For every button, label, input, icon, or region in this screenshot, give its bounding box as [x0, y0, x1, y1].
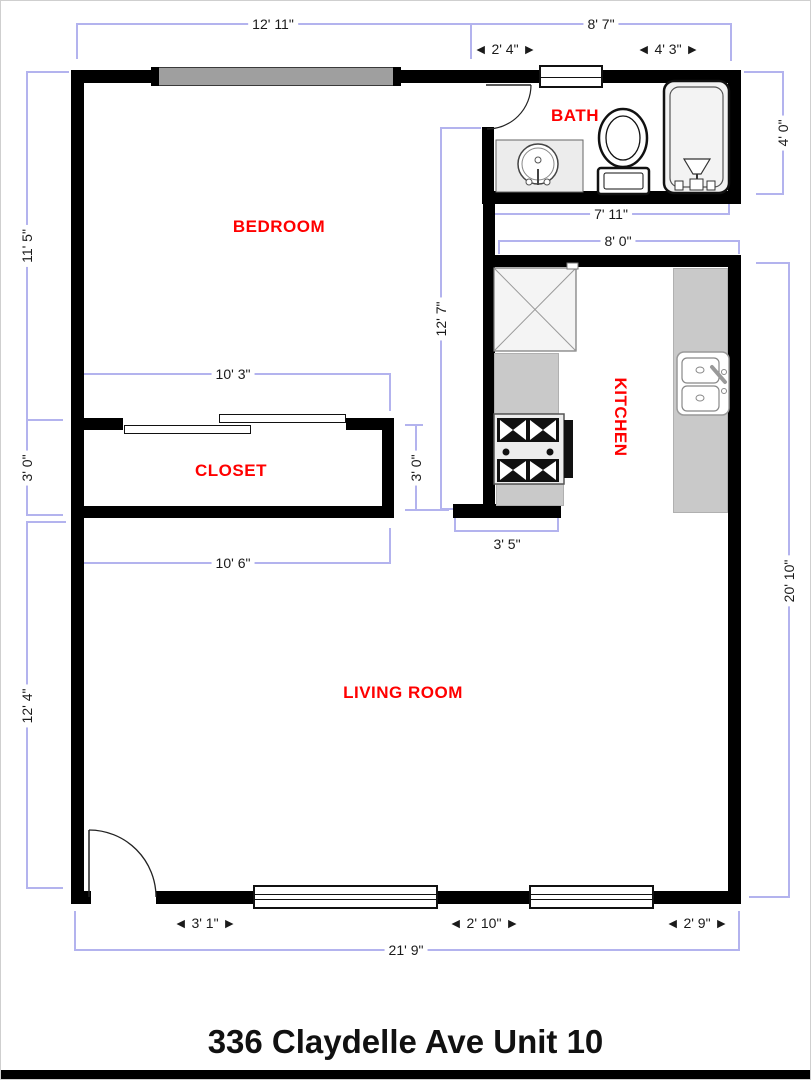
dim-label-3-0-right: 3' 0": [409, 450, 423, 485]
dim-label-10-3: 10' 3": [212, 367, 255, 381]
dim-label-21-9: 21' 9": [385, 943, 428, 957]
entry-door: [89, 830, 156, 897]
dim-tick: [389, 373, 391, 411]
window-end-cap: [151, 67, 159, 86]
bedroom-window: [151, 67, 401, 86]
dim-label-12-11: 12' 11": [248, 17, 298, 31]
dim-label-3-5: 3' 5": [489, 537, 524, 551]
bathtub: [664, 81, 729, 193]
room-label-bath: BATH: [551, 106, 599, 126]
dim-tick: [749, 896, 790, 898]
wall-left: [71, 70, 84, 904]
wall-closet-bottom: [71, 506, 394, 518]
wall-bottom-left-stub: [71, 891, 91, 904]
dim-tick: [74, 911, 76, 951]
dim-label-4-0: 4' 0": [776, 115, 790, 150]
living-room-window-right: [529, 885, 654, 909]
window-pane-line: [531, 899, 652, 900]
wall-bath-bottom: [482, 191, 741, 204]
dim-tick: [738, 911, 740, 951]
dim-tick: [738, 240, 740, 254]
footer-bar: [1, 1070, 810, 1079]
dim-tick: [441, 127, 481, 129]
dim-label-8-0: 8' 0": [600, 234, 635, 248]
toilet: [598, 109, 649, 194]
room-label-closet: CLOSET: [195, 461, 267, 481]
dim-label-12-7: 12' 7": [434, 298, 448, 341]
dim-tick: [26, 514, 63, 516]
dim-label-8-7: 8' 7": [583, 17, 618, 31]
window-pane-line: [541, 77, 601, 78]
dim-label-12-4: 12' 4": [20, 685, 34, 728]
dim-label-7-11: 7' 11": [590, 207, 632, 221]
dim-label-3-0-left: 3' 0": [20, 450, 34, 485]
wall-closet-right: [382, 418, 394, 518]
kitchen-counter-right: [673, 268, 728, 513]
closet-sliding-door-left: [124, 425, 251, 434]
room-label-bedroom: BEDROOM: [233, 217, 325, 237]
bath-window: [539, 65, 603, 88]
dim-line-top: [76, 23, 731, 25]
wall-right-bath: [728, 70, 741, 204]
stove: [494, 414, 573, 484]
dim-label-4-3: ◄ 4' 3" ►: [633, 42, 704, 56]
floor-plan: 12' 11" 8' 7" ◄ 2' 4" ► ◄ 4' 3" ► 4' 0" …: [0, 0, 811, 1080]
dim-line-3-5: [454, 530, 559, 532]
dim-tick: [26, 887, 63, 889]
dim-label-2-9: ◄ 2' 9" ►: [662, 916, 733, 930]
window-pane-line: [255, 894, 436, 895]
dim-label-2-4: ◄ 2' 4" ►: [470, 42, 541, 56]
dim-tick: [756, 193, 784, 195]
dim-tick: [756, 262, 790, 264]
wall-kitchen-stub: [453, 504, 561, 518]
wall-closet-top-left: [71, 418, 123, 430]
kitchen-counter-left-lower: [496, 484, 564, 506]
room-label-living: LIVING ROOM: [343, 683, 463, 703]
bath-door: [486, 85, 531, 129]
dim-label-10-6: 10' 6": [212, 556, 255, 570]
living-room-window-left: [253, 885, 438, 909]
dim-label-2-10: ◄ 2' 10" ►: [445, 916, 523, 930]
dim-label-11-5: 11' 5": [20, 225, 34, 267]
dim-tick: [405, 509, 449, 511]
dim-tick: [26, 521, 66, 523]
dim-tick: [26, 71, 69, 73]
dim-tick: [26, 419, 63, 421]
dim-label-3-1: ◄ 3' 1" ►: [170, 916, 241, 930]
window-pane-line: [255, 899, 436, 900]
dim-tick: [389, 528, 391, 564]
refrigerator: [494, 263, 578, 351]
wall-kitchen-top: [483, 255, 741, 267]
kitchen-counter-left-upper: [494, 353, 559, 414]
closet-sliding-door-right: [219, 414, 346, 423]
dim-tick: [744, 71, 784, 73]
dim-tick: [76, 23, 78, 59]
window-end-cap: [393, 67, 401, 86]
dim-tick: [498, 240, 500, 254]
room-label-kitchen: KITCHEN: [610, 377, 630, 456]
wall-right-main: [728, 256, 741, 904]
floor-plan-title: 336 Claydelle Ave Unit 10: [1, 1023, 810, 1061]
dim-tick: [730, 23, 732, 61]
dim-label-20-10: 20' 10": [782, 556, 796, 607]
window-pane-line: [531, 894, 652, 895]
bathroom-sink: [496, 140, 583, 192]
dim-tick: [405, 424, 423, 426]
